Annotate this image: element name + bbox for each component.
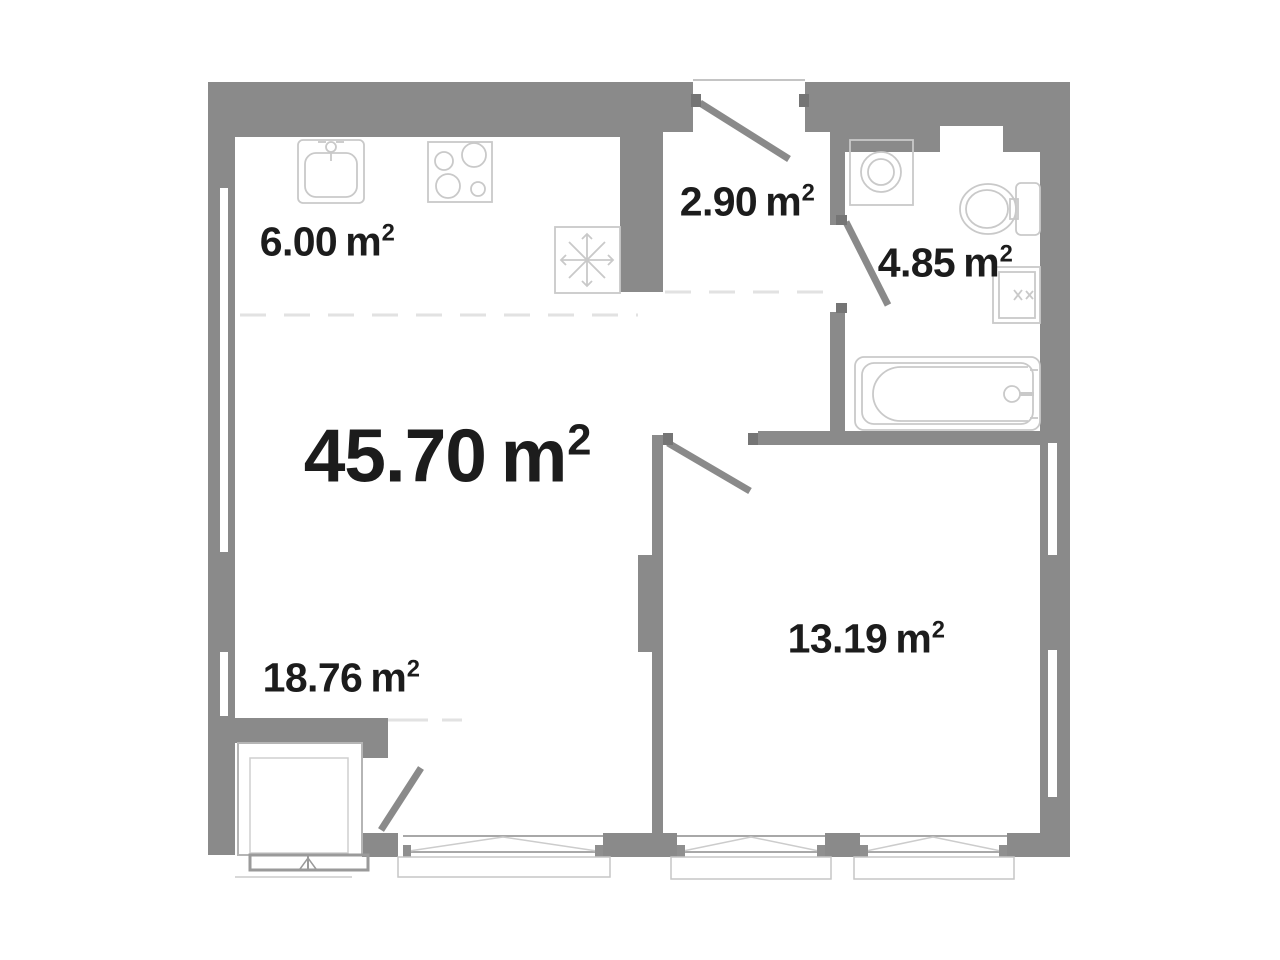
entrance-door-leaf — [700, 103, 789, 159]
entrance-jamb-right — [799, 94, 809, 107]
bedroom-jamb-right — [748, 433, 758, 445]
windows — [398, 836, 1014, 879]
bedroom-window-left — [671, 836, 831, 879]
floor-plan-drawing — [0, 0, 1280, 960]
bathroom-area-unit: m — [963, 240, 999, 286]
entrance-jamb-left — [691, 94, 701, 107]
living-area-label: 18.76m2 — [263, 658, 420, 699]
wall-bath-left-lower — [830, 312, 845, 433]
bedroom-window-right — [854, 836, 1014, 879]
wall-bedroom-top — [758, 431, 1040, 445]
left-wall-glazing-slot-upper — [220, 188, 228, 552]
fridge-icon — [555, 227, 620, 293]
total-area-label: 45.70m2 — [304, 419, 591, 494]
hall-area-exponent: 2 — [802, 180, 815, 207]
total-area-unit: m — [501, 414, 567, 498]
right-wall-glazing-slot-lower — [1048, 650, 1057, 797]
kitchen-area-exponent: 2 — [382, 220, 395, 247]
living-area-exponent: 2 — [407, 656, 420, 683]
hall-area-value: 2.90 — [680, 179, 757, 225]
wall-top-hall-left — [663, 82, 693, 132]
wall-bottom-pier-bedroom — [825, 833, 860, 857]
bedroom-door-leaf — [668, 443, 750, 491]
kitchen-area-value: 6.00 — [260, 219, 337, 265]
bedroom-area-exponent: 2 — [932, 617, 945, 644]
wall-top-kitchen — [208, 82, 663, 137]
bath-ceiling-notch — [940, 126, 1003, 152]
wall-kitchen-hall — [620, 137, 663, 292]
bedroom-area-label: 13.19m2 — [788, 619, 945, 660]
bedroom-jamb-left — [663, 433, 673, 445]
kitchen-area-unit: m — [345, 219, 381, 265]
living-area-value: 18.76 — [263, 655, 363, 701]
balcony-door-leaf — [381, 768, 421, 830]
bathroom-jamb-top — [836, 215, 847, 225]
hall-area-unit: m — [765, 179, 801, 225]
wall-bottom-right-corner — [1007, 833, 1070, 857]
bathroom-area-value: 4.85 — [878, 240, 955, 286]
bathroom-area-exponent: 2 — [1000, 241, 1013, 268]
balcony-outer-outline — [238, 743, 362, 855]
bathtub — [855, 357, 1040, 430]
door-jambs — [663, 94, 847, 445]
balcony — [235, 743, 368, 877]
stove — [428, 142, 492, 202]
kitchen-fixtures — [298, 140, 620, 293]
wall-bath-left-upper — [830, 132, 845, 225]
living-room-window — [398, 836, 610, 877]
wall-divider-pilaster — [638, 555, 663, 652]
bathroom-area-label: 4.85m2 — [878, 243, 1012, 284]
wall-balcony-door-pier — [362, 833, 398, 857]
bedroom-area-value: 13.19 — [788, 616, 888, 662]
left-wall-glazing-slot-lower — [220, 652, 228, 716]
right-wall-glazing-slot-upper — [1048, 443, 1057, 555]
floor-plan-page: 6.00m2 2.90m2 4.85m2 45.70m2 18.76m2 13.… — [0, 0, 1280, 960]
bathroom-jamb-bottom — [836, 303, 847, 313]
kitchen-area-label: 6.00m2 — [260, 222, 394, 263]
living-area-unit: m — [370, 655, 406, 701]
toilet — [960, 183, 1040, 235]
total-area-value: 45.70 — [304, 414, 486, 498]
bedroom-area-unit: m — [895, 616, 931, 662]
hall-area-label: 2.90m2 — [680, 182, 814, 223]
total-area-exponent: 2 — [567, 417, 590, 465]
kitchen-sink — [298, 140, 364, 203]
wall-bottom-pier-living-bedroom — [603, 833, 677, 857]
